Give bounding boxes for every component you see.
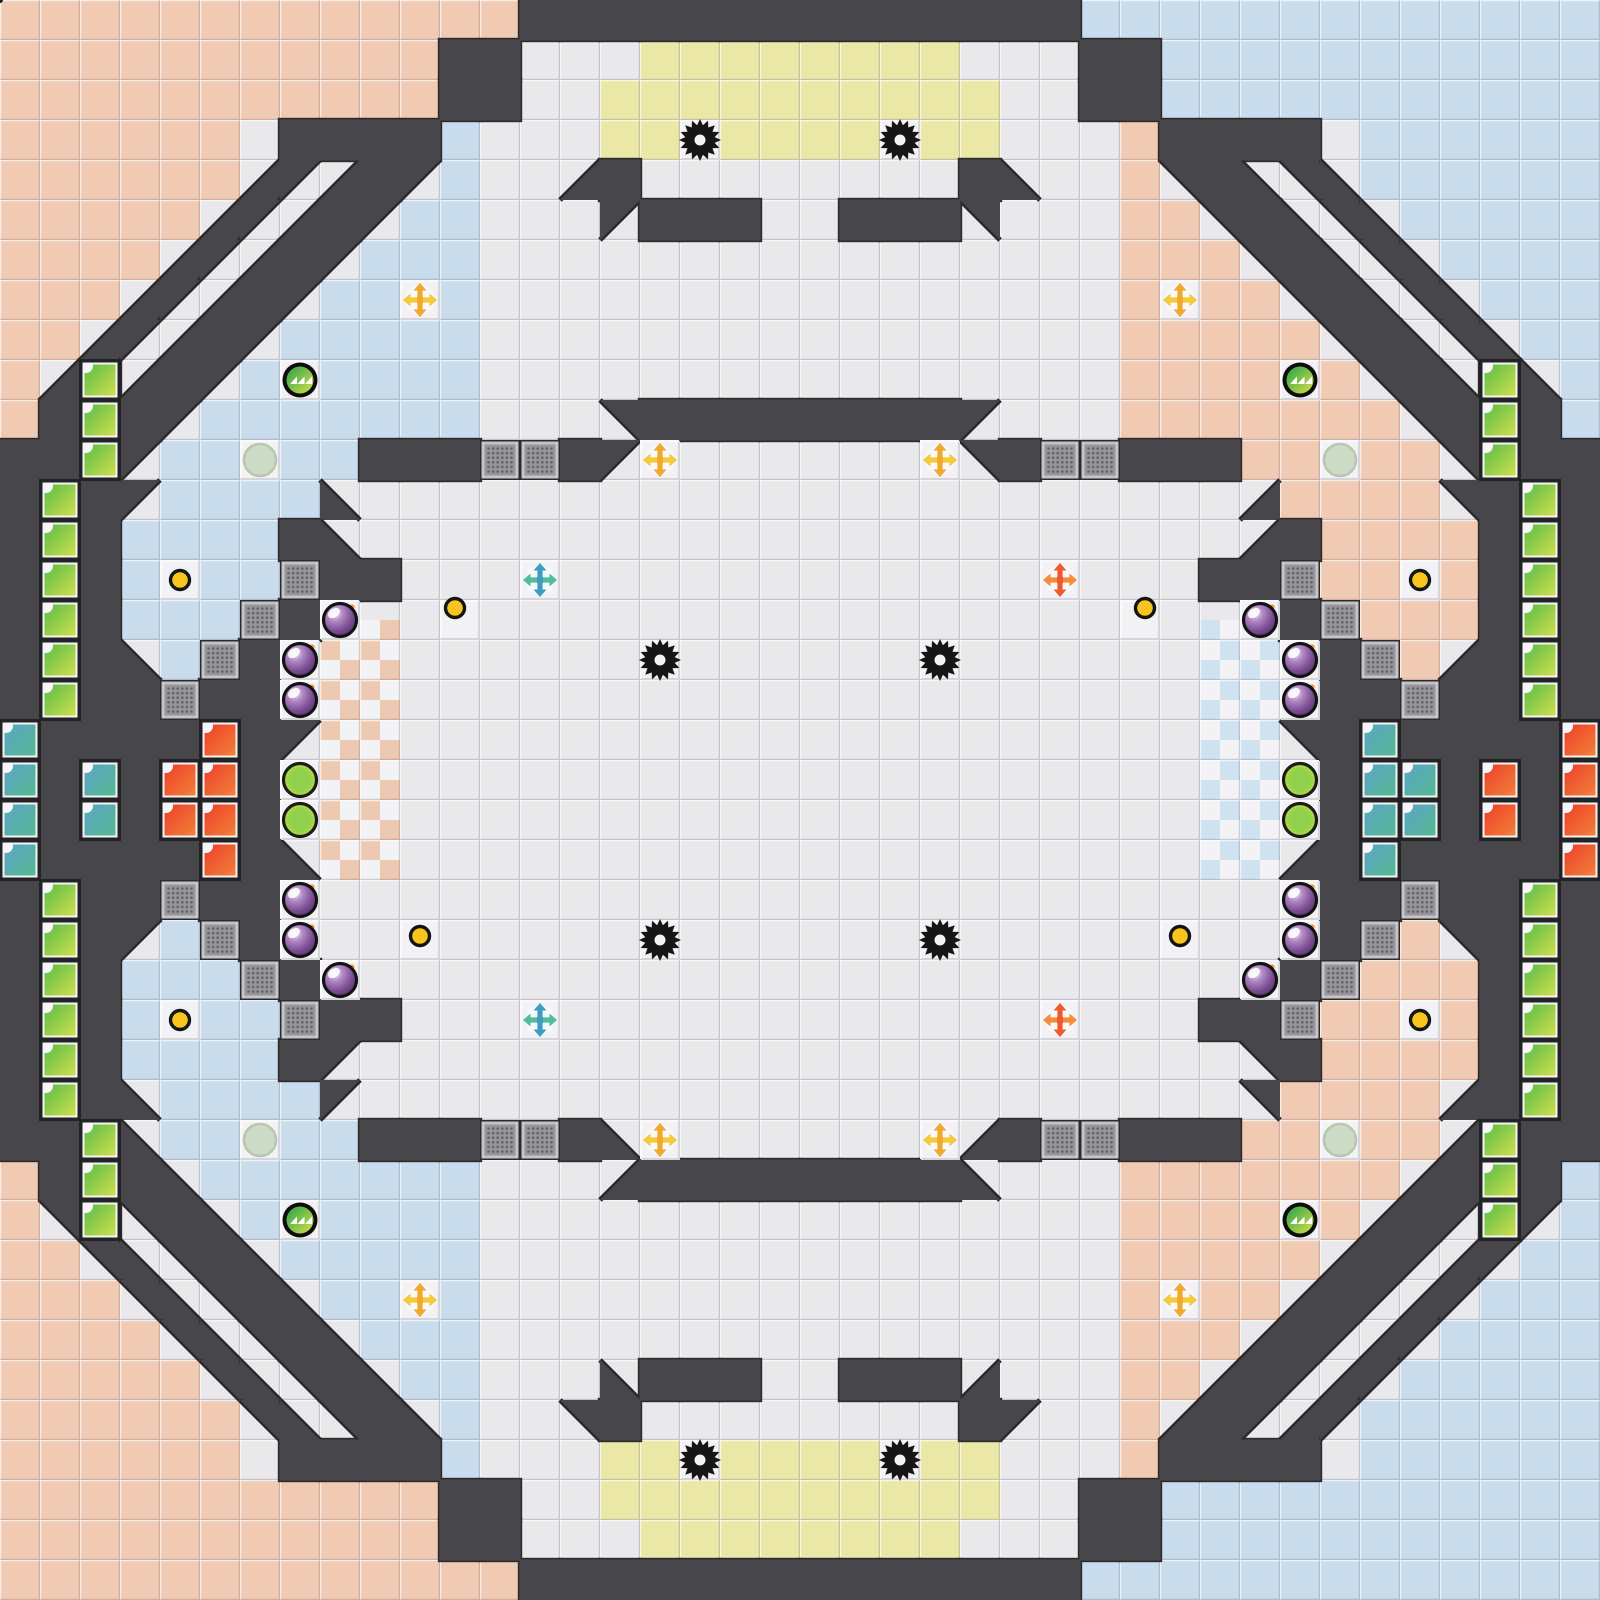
red-tile	[1559, 799, 1600, 841]
green-tile	[39, 519, 81, 561]
bomb	[1241, 961, 1279, 999]
bomb	[281, 641, 319, 679]
spike	[919, 919, 961, 961]
green-tile	[1519, 1079, 1561, 1121]
bomb	[281, 921, 319, 959]
boost-yellow	[641, 441, 679, 479]
powerup-green	[1281, 1201, 1319, 1239]
green-tile	[1479, 359, 1521, 401]
green-tile	[1519, 1039, 1561, 1081]
boost-yellow	[921, 441, 959, 479]
green-tile	[1519, 679, 1561, 721]
red-tile	[1479, 759, 1521, 801]
spike	[679, 1439, 721, 1481]
green-tile	[1519, 999, 1561, 1041]
button	[161, 561, 199, 599]
green-tile	[1519, 919, 1561, 961]
red-tile	[1559, 839, 1600, 881]
pale-orb	[241, 1121, 279, 1159]
boost-yellow	[641, 1121, 679, 1159]
green-tile	[79, 1199, 121, 1241]
lime-orb	[281, 761, 319, 799]
green-tile	[1519, 879, 1561, 921]
green-tile	[1519, 959, 1561, 1001]
game-map	[0, 0, 1600, 1600]
green-tile	[1519, 599, 1561, 641]
boost-orange	[1041, 561, 1079, 599]
spike	[919, 639, 961, 681]
red-tile	[159, 759, 201, 801]
teal-tile	[1359, 839, 1401, 881]
powerup-green	[1281, 361, 1319, 399]
red-tile	[159, 799, 201, 841]
pale-orb	[1321, 1121, 1359, 1159]
bomb	[321, 601, 359, 639]
boost-yellow	[1161, 1281, 1199, 1319]
lime-orb	[1281, 761, 1319, 799]
red-tile	[1479, 799, 1521, 841]
green-tile	[39, 959, 81, 1001]
powerup-green	[281, 361, 319, 399]
bomb	[281, 881, 319, 919]
green-tile	[79, 399, 121, 441]
teal-tile	[1399, 799, 1441, 841]
green-tile	[1479, 1119, 1521, 1161]
bomb	[281, 681, 319, 719]
lime-orb	[1281, 801, 1319, 839]
map-canvas-svg[interactable]	[0, 0, 1600, 1600]
boost-teal	[521, 1001, 559, 1039]
pale-orb	[1321, 441, 1359, 479]
red-tile	[199, 759, 241, 801]
red-tile	[1559, 719, 1600, 761]
green-tile	[1519, 639, 1561, 681]
green-tile	[39, 999, 81, 1041]
green-tile	[1519, 559, 1561, 601]
button	[161, 1001, 199, 1039]
green-tile	[39, 599, 81, 641]
spike	[879, 119, 921, 161]
boost-yellow	[921, 1121, 959, 1159]
spike	[679, 119, 721, 161]
teal-tile	[1359, 759, 1401, 801]
teal-tile	[0, 759, 41, 801]
button	[1401, 1001, 1439, 1039]
button	[1121, 599, 1159, 640]
green-tile	[1519, 479, 1561, 521]
bomb	[1241, 601, 1279, 639]
pale-orb	[241, 441, 279, 479]
boost-teal	[521, 561, 559, 599]
bomb	[1281, 921, 1319, 959]
boost-yellow	[401, 1281, 439, 1319]
teal-tile	[79, 799, 121, 841]
spike	[639, 919, 681, 961]
green-tile	[39, 479, 81, 521]
bomb	[1281, 641, 1319, 679]
teal-tile	[79, 759, 121, 801]
green-tile	[79, 1119, 121, 1161]
green-tile	[39, 559, 81, 601]
spike	[879, 1439, 921, 1481]
teal-tile	[0, 719, 41, 761]
button	[401, 921, 439, 959]
red-tile	[1559, 759, 1600, 801]
bomb	[321, 961, 359, 999]
teal-tile	[1359, 799, 1401, 841]
green-tile	[39, 919, 81, 961]
green-tile	[1479, 1159, 1521, 1201]
bomb	[1281, 681, 1319, 719]
red-tile	[199, 719, 241, 761]
green-tile	[39, 1079, 81, 1121]
boost-yellow	[401, 281, 439, 319]
green-tile	[1479, 439, 1521, 481]
red-tile	[199, 839, 241, 881]
green-tile	[39, 639, 81, 681]
lime-orb	[281, 801, 319, 839]
red-tile	[199, 799, 241, 841]
green-tile	[1479, 399, 1521, 441]
boost-yellow	[1161, 281, 1199, 319]
green-tile	[79, 439, 121, 481]
spike	[639, 639, 681, 681]
green-tile	[39, 879, 81, 921]
teal-tile	[0, 839, 41, 881]
button	[1401, 561, 1439, 599]
bomb	[1281, 881, 1319, 919]
button	[1161, 921, 1199, 959]
button	[441, 599, 479, 640]
green-tile	[39, 1039, 81, 1081]
teal-tile	[1359, 719, 1401, 761]
green-tile	[79, 359, 121, 401]
green-tile	[79, 1159, 121, 1201]
teal-tile	[0, 799, 41, 841]
powerup-green	[281, 1201, 319, 1239]
green-tile	[39, 679, 81, 721]
green-tile	[1479, 1199, 1521, 1241]
boost-orange	[1041, 1001, 1079, 1039]
green-tile	[1519, 519, 1561, 561]
teal-tile	[1399, 759, 1441, 801]
